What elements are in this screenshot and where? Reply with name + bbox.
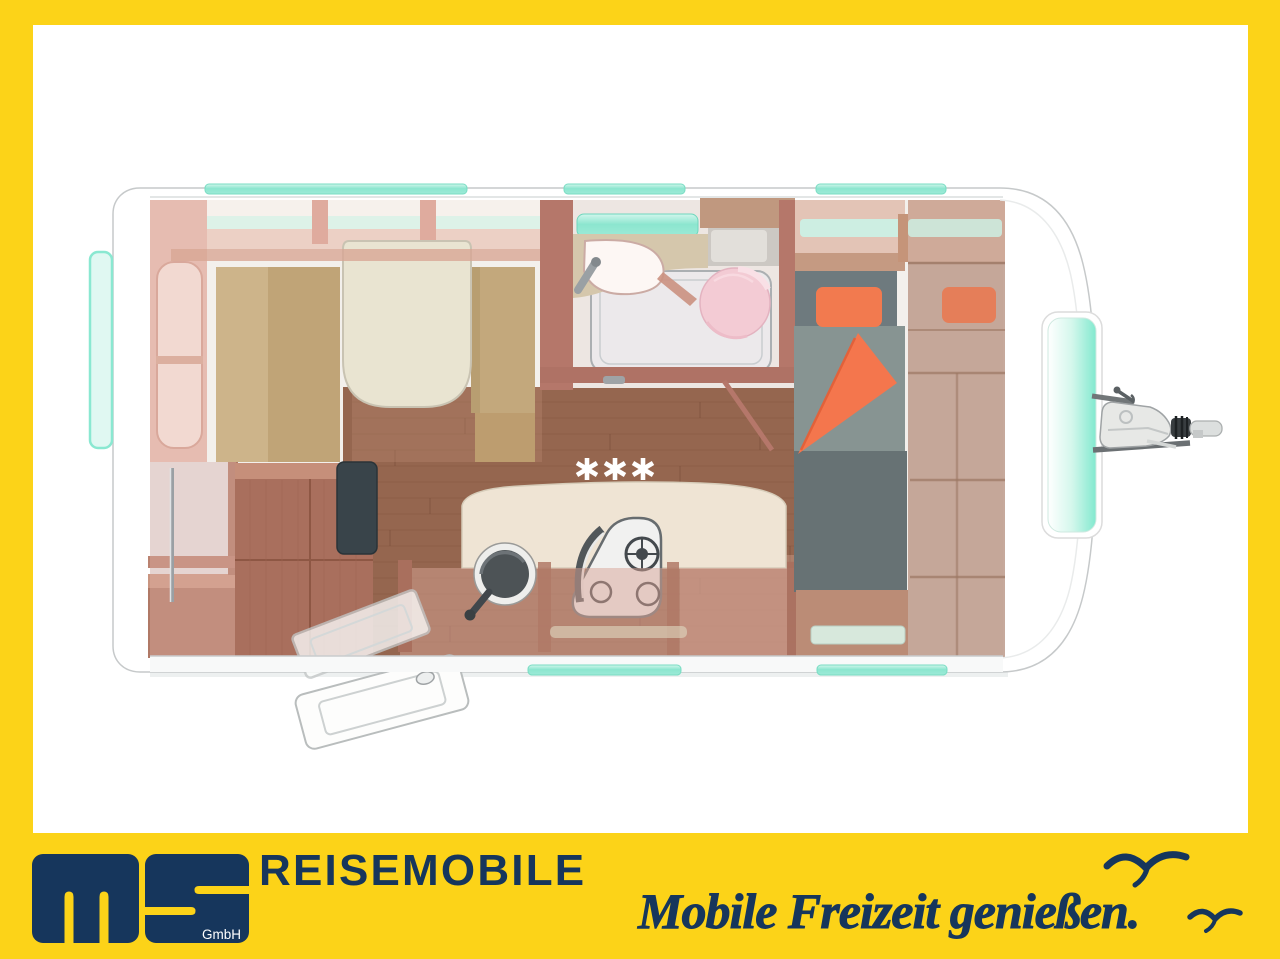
- svg-text:GmbH: GmbH: [202, 927, 241, 942]
- svg-text:REISEMOBILE: REISEMOBILE: [259, 846, 586, 895]
- svg-text:Mobile Freizeit genießen.: Mobile Freizeit genießen.: [637, 883, 1139, 939]
